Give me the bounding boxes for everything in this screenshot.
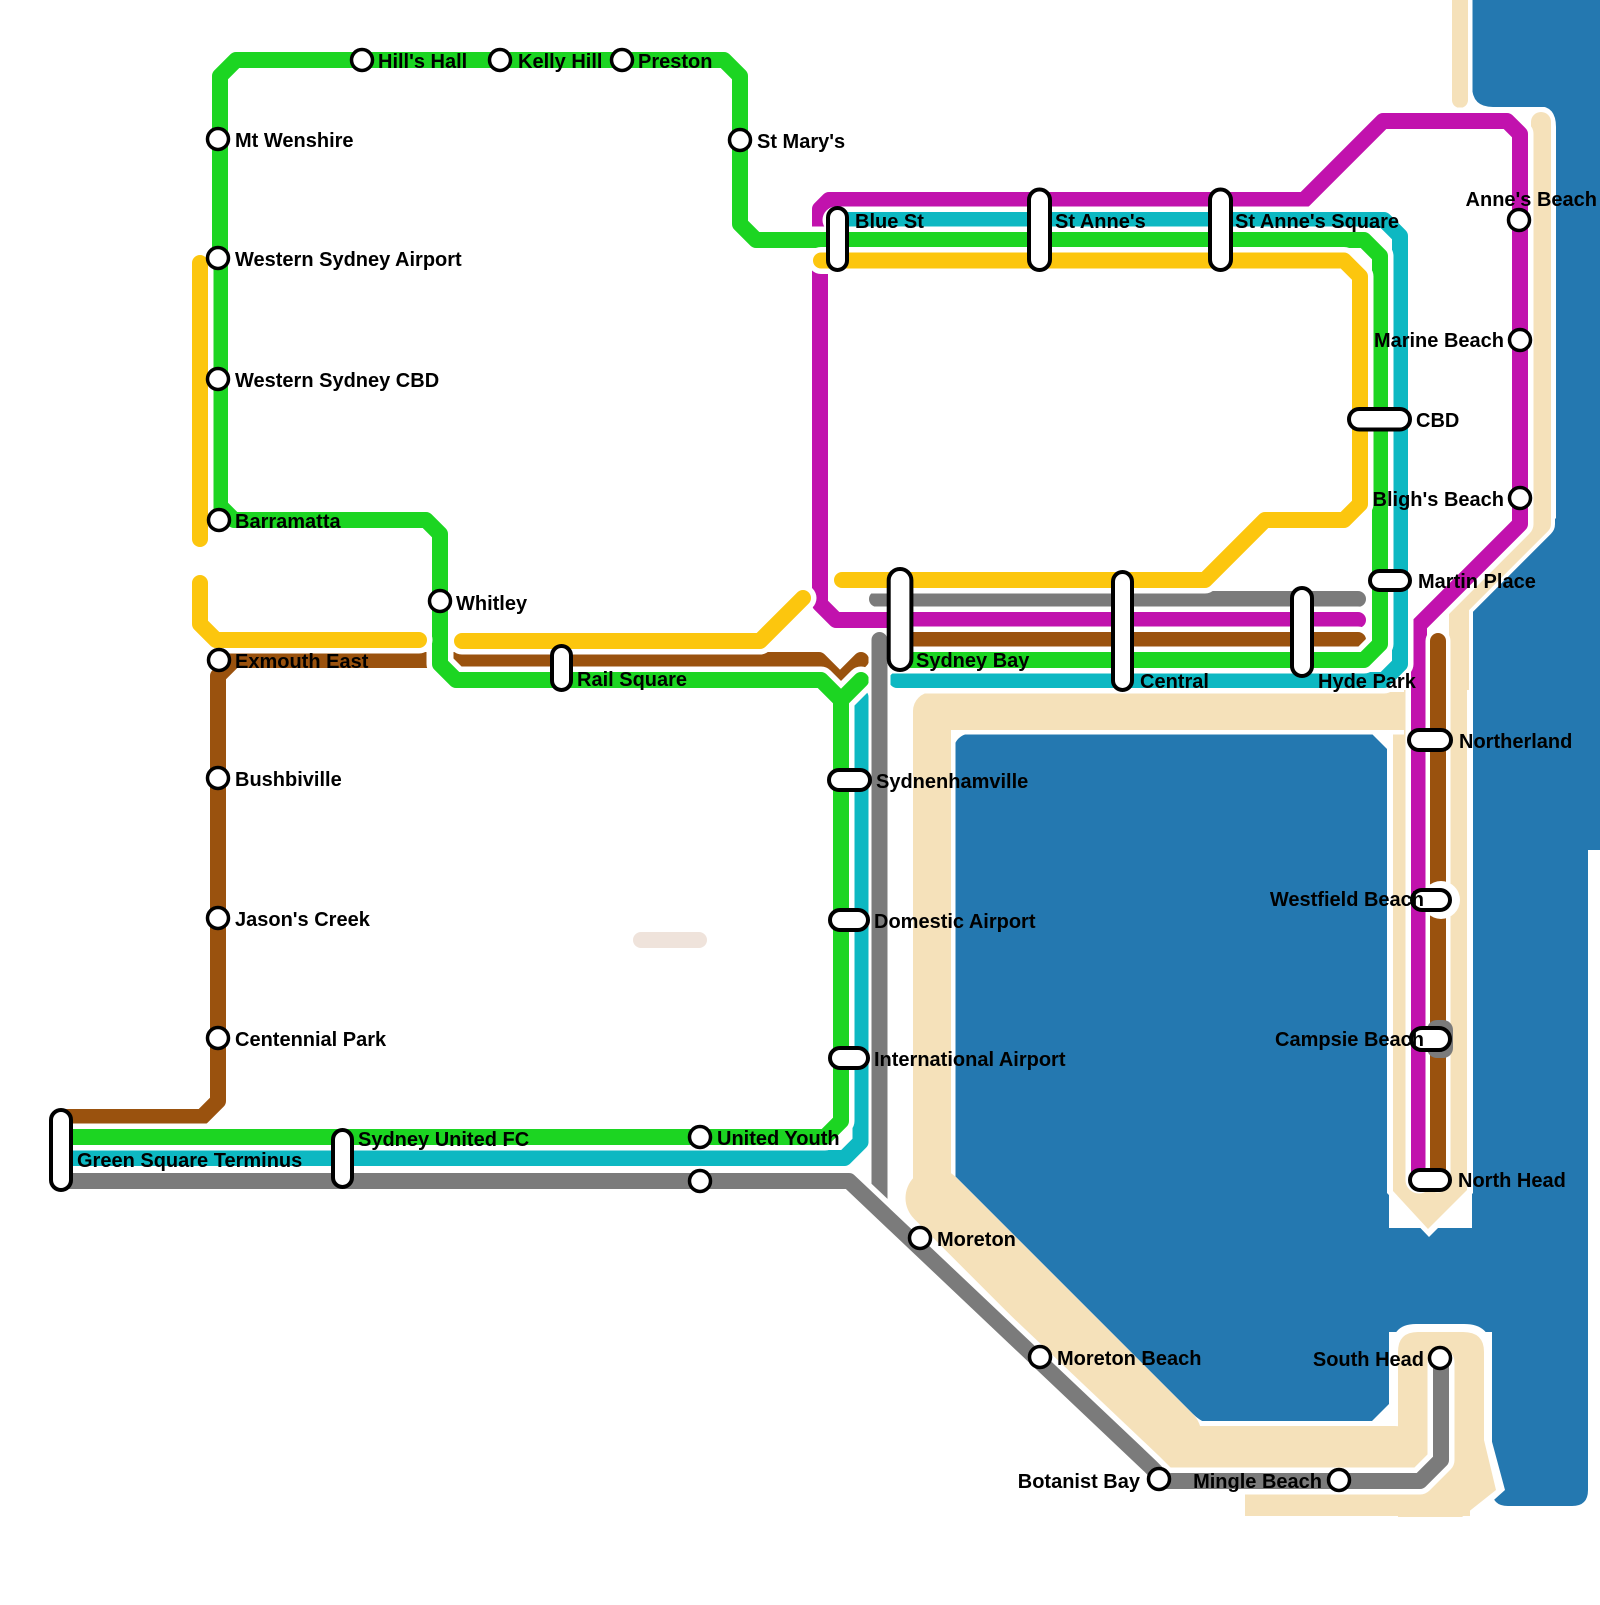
svg-text:Hyde Park: Hyde Park <box>1318 671 1417 693</box>
svg-text:Hill's Hall: Hill's Hall <box>378 51 467 73</box>
svg-text:Sydney Bay: Sydney Bay <box>916 650 1030 672</box>
svg-text:CBD: CBD <box>1416 410 1459 432</box>
svg-text:International Airport: International Airport <box>874 1049 1066 1071</box>
svg-text:Domestic Airport: Domestic Airport <box>874 911 1036 933</box>
svg-text:St Anne's Square: St Anne's Square <box>1235 211 1399 233</box>
svg-text:Bligh's Beach: Bligh's Beach <box>1373 489 1504 511</box>
svg-text:Westfield Beach: Westfield Beach <box>1270 889 1424 911</box>
svg-text:Exmouth East: Exmouth East <box>235 651 369 673</box>
svg-text:Western Sydney CBD: Western Sydney CBD <box>235 370 439 392</box>
svg-text:Western Sydney Airport: Western Sydney Airport <box>235 249 462 271</box>
svg-text:Whitley: Whitley <box>456 593 528 615</box>
svg-text:Martin Place: Martin Place <box>1418 571 1536 593</box>
svg-text:Sydnenhamville: Sydnenhamville <box>876 771 1028 793</box>
svg-text:United Youth: United Youth <box>717 1128 840 1150</box>
svg-text:Kelly Hill: Kelly Hill <box>518 51 602 73</box>
svg-text:Moreton: Moreton <box>937 1229 1016 1251</box>
svg-text:St Mary's: St Mary's <box>757 131 845 153</box>
svg-text:Mingle Beach: Mingle Beach <box>1193 1471 1322 1493</box>
svg-text:Bushbiville: Bushbiville <box>235 769 342 791</box>
svg-text:Barramatta: Barramatta <box>235 511 341 533</box>
svg-text:Mt Wenshire: Mt Wenshire <box>235 130 354 152</box>
svg-text:Moreton Beach: Moreton Beach <box>1057 1348 1201 1370</box>
svg-text:Blue St: Blue St <box>855 211 924 233</box>
svg-text:Botanist Bay: Botanist Bay <box>1018 1471 1141 1493</box>
svg-text:Campsie Beach: Campsie Beach <box>1275 1029 1424 1051</box>
svg-text:North Head: North Head <box>1458 1170 1566 1192</box>
svg-text:Centennial Park: Centennial Park <box>235 1029 387 1051</box>
svg-text:Preston: Preston <box>638 51 712 73</box>
svg-text:Northerland: Northerland <box>1459 731 1572 753</box>
svg-text:St Anne's: St Anne's <box>1055 211 1146 233</box>
svg-text:Green Square Terminus: Green Square Terminus <box>77 1150 302 1172</box>
svg-text:South Head: South Head <box>1313 1349 1424 1371</box>
svg-text:Jason's Creek: Jason's Creek <box>235 909 371 931</box>
svg-text:Anne's Beach: Anne's Beach <box>1466 189 1597 211</box>
svg-text:Sydney United FC: Sydney United FC <box>358 1129 529 1151</box>
svg-text:Marine Beach: Marine Beach <box>1374 330 1504 352</box>
svg-text:Central: Central <box>1140 671 1209 693</box>
svg-text:Rail Square: Rail Square <box>577 669 687 691</box>
